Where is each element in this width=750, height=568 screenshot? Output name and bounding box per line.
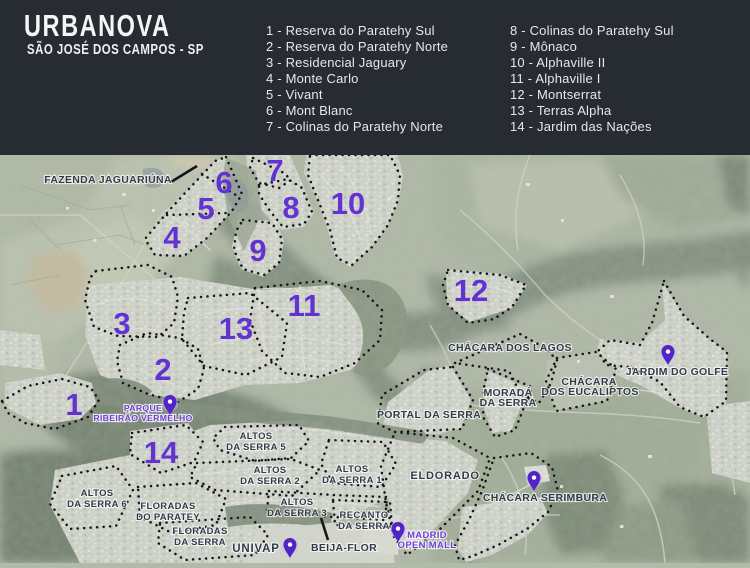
svg-text:DA SERRA 1: DA SERRA 1 [322,475,382,486]
svg-text:4: 4 [163,220,181,255]
svg-text:DA SERRA 5: DA SERRA 5 [226,442,286,453]
svg-text:3: 3 [113,306,130,341]
svg-text:ALTOS: ALTOS [254,465,287,476]
svg-text:RIBEIRÃO VERMELHO: RIBEIRÃO VERMELHO [93,413,192,423]
svg-text:9: 9 [249,233,266,268]
svg-text:2: 2 [154,352,171,387]
svg-text:DA SERRA: DA SERRA [480,397,537,409]
svg-text:7: 7 [266,155,283,188]
svg-text:ALTOS: ALTOS [240,431,273,442]
svg-text:ELDORADO: ELDORADO [410,470,479,482]
svg-text:RECANTO: RECANTO [340,510,389,521]
svg-text:CHÁCARA SERIMBURA: CHÁCARA SERIMBURA [483,491,607,504]
svg-text:14: 14 [144,435,179,470]
svg-text:DO PARATEY: DO PARATEY [136,512,200,523]
svg-text:JARDIM DO GOLFE: JARDIM DO GOLFE [626,366,729,378]
svg-text:DA SERRA: DA SERRA [174,537,226,548]
svg-text:5: 5 [197,191,214,226]
svg-text:1: 1 [65,387,82,422]
svg-text:13: 13 [219,311,253,346]
svg-text:ALTOS: ALTOS [336,464,369,475]
svg-text:CHÁCARA DOS LAGOS: CHÁCARA DOS LAGOS [448,341,572,354]
svg-text:DA SERRA: DA SERRA [338,521,390,532]
svg-text:UNIVAP: UNIVAP [232,543,279,555]
svg-text:PORTAL DA SERRA: PORTAL DA SERRA [377,409,481,421]
svg-text:OPEN MALL: OPEN MALL [398,540,457,551]
svg-text:DOS EUCALIPTOS: DOS EUCALIPTOS [541,386,638,398]
svg-text:FLORADAS: FLORADAS [172,526,227,537]
svg-text:FAZENDA JAGUARIÚNA: FAZENDA JAGUARIÚNA [44,173,172,186]
svg-text:DA SERRA 2: DA SERRA 2 [240,476,300,487]
svg-text:ALTOS: ALTOS [81,488,114,499]
svg-text:8: 8 [282,190,299,225]
svg-text:11: 11 [288,288,321,323]
svg-text:6: 6 [215,165,232,200]
svg-text:FLORADAS: FLORADAS [140,501,195,512]
svg-text:BEIJA-FLOR: BEIJA-FLOR [311,542,377,554]
svg-text:DA SERRA 6: DA SERRA 6 [67,499,127,510]
svg-text:10: 10 [331,186,365,221]
svg-text:PARQUE: PARQUE [124,403,162,413]
svg-text:ALTOS: ALTOS [281,497,314,508]
svg-text:12: 12 [454,273,488,308]
svg-text:DA SERRA 3: DA SERRA 3 [267,508,327,519]
